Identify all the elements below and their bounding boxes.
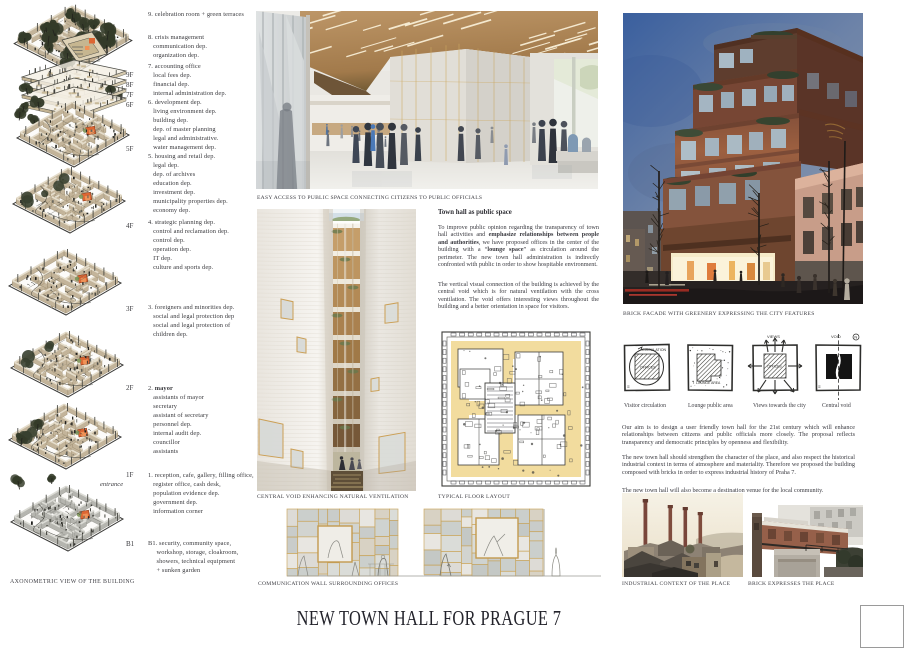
- svg-text:≡: ≡: [818, 384, 821, 389]
- svg-text:CIRCULATION: CIRCULATION: [642, 348, 666, 352]
- svg-text:OFFICES: OFFICES: [640, 366, 656, 370]
- svg-text:VOID: VOID: [831, 334, 841, 339]
- svg-text:≡: ≡: [627, 384, 630, 389]
- svg-text:VIEWS: VIEWS: [767, 334, 780, 339]
- svg-text:LOUNGE AREA: LOUNGE AREA: [696, 381, 721, 385]
- svg-text:N: N: [854, 335, 857, 340]
- svg-text:OFFICES: OFFICES: [767, 365, 782, 369]
